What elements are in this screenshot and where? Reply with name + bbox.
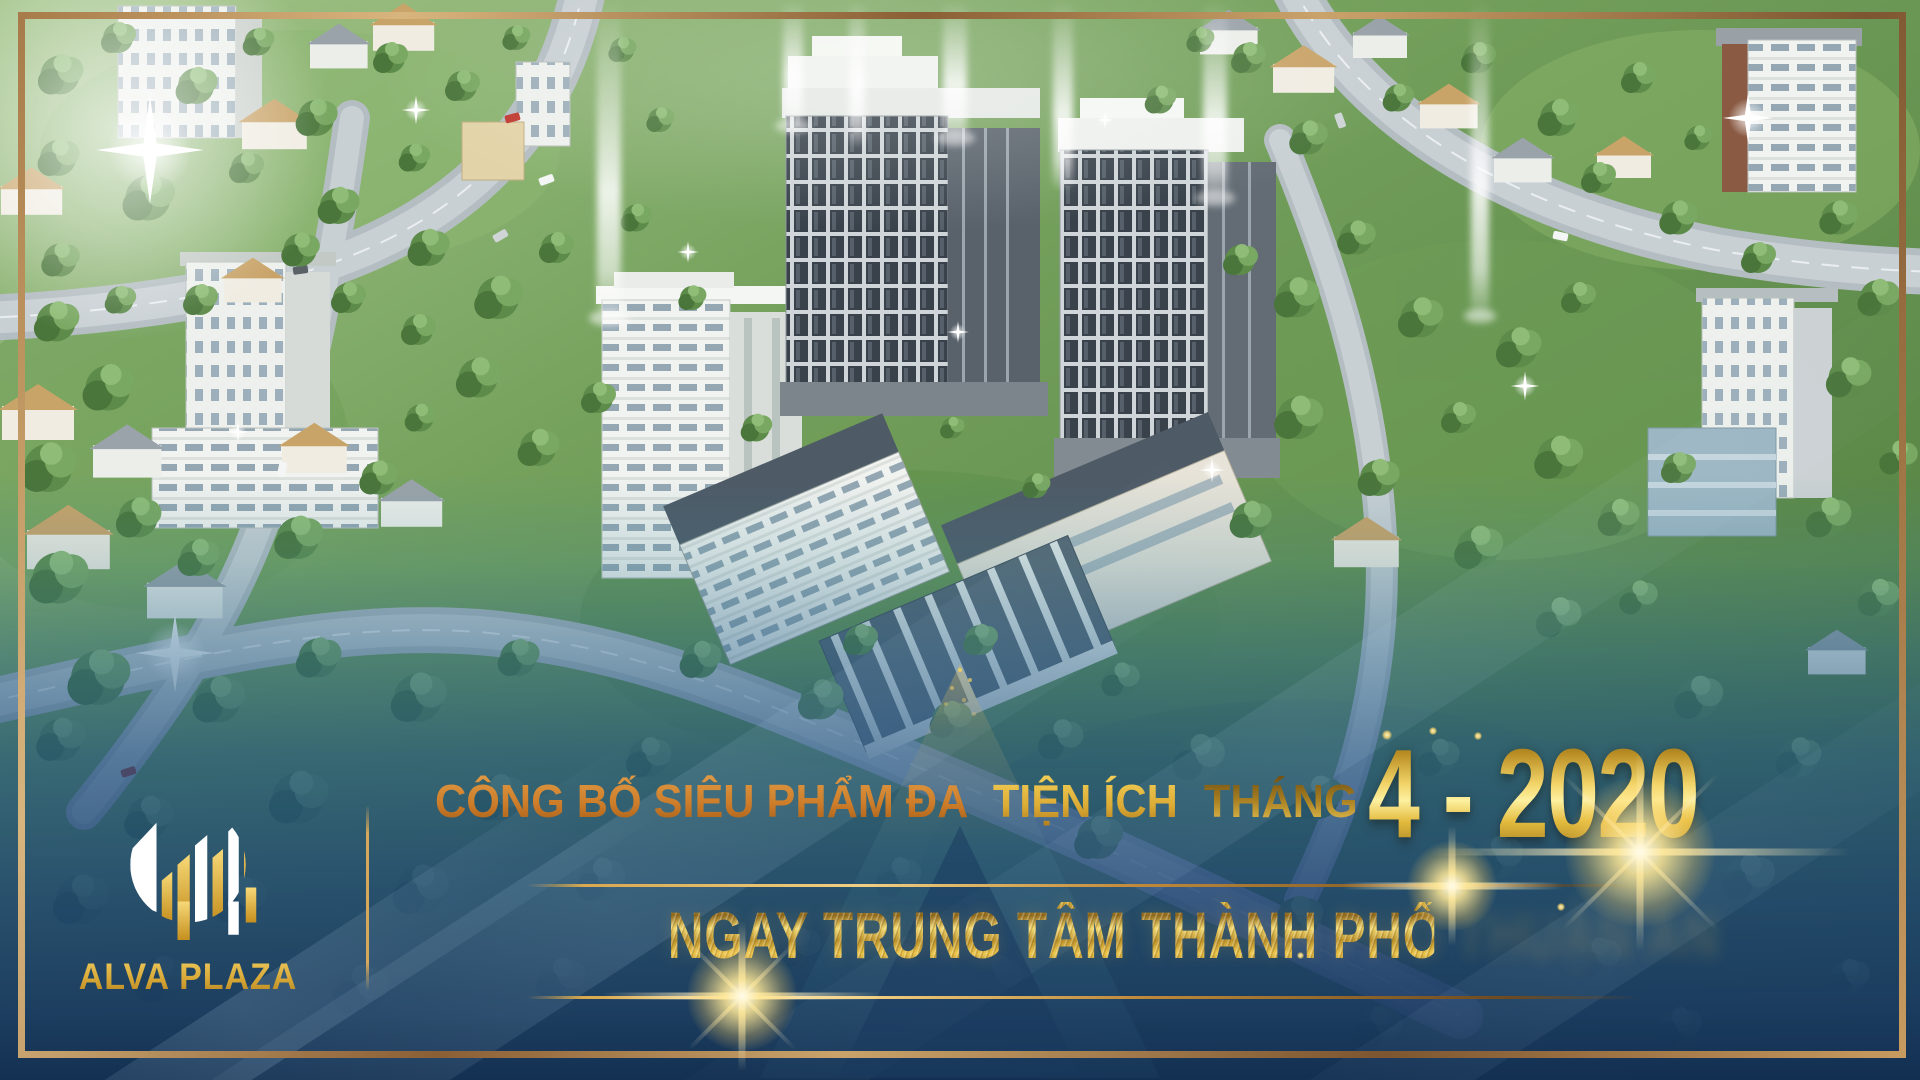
headline: CÔNG BỐ SIÊU PHẨM ĐA TIỆN ÍCH THÁNG [435, 778, 1358, 824]
brand-name: ALVA PLAZA [72, 956, 304, 998]
subheadline: NGAY TRUNG TÂM THÀNH PHỐ THUẬN AN [668, 902, 1435, 968]
gold-divider-line-bottom [527, 996, 1641, 999]
gold-dot-sparkle [1429, 727, 1437, 735]
gold-divider-line-top [527, 884, 1641, 887]
gold-dot-sparkle [1297, 952, 1304, 959]
alva-plaza-poster: ALVA PLAZA CÔNG BỐ SIÊU PHẨM ĐA TIỆN ÍCH… [0, 0, 1920, 1080]
building-skyline-circle-icon [118, 796, 258, 944]
gold-dot-sparkle [1382, 730, 1392, 740]
launch-date: 4 - 2020 [1368, 731, 1698, 857]
headline-highlight: TIỆN ÍCH [993, 775, 1178, 827]
brand-logo: ALVA PLAZA [62, 796, 314, 998]
vertical-gold-divider [366, 806, 369, 990]
gold-dot-sparkle [1474, 732, 1482, 740]
headline-prefix: CÔNG BỐ SIÊU PHẨM ĐA [435, 775, 967, 827]
headline-suffix: THÁNG [1204, 775, 1358, 827]
gold-dot-sparkle [1557, 903, 1565, 911]
